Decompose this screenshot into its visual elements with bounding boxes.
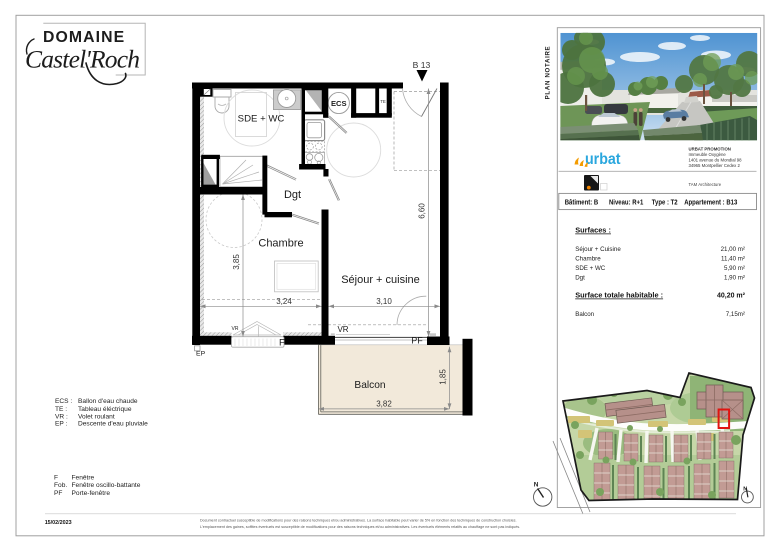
svg-text:40,20 m²: 40,20 m² [717,293,746,300]
svg-text:PF: PF [411,335,423,345]
svg-text:21,00 m²: 21,00 m² [721,246,745,253]
svg-text:Ballon d'eau chaude: Ballon d'eau chaude [78,398,138,405]
svg-text:15/02/2023: 15/02/2023 [45,520,72,526]
svg-text:Porte-fenêtre: Porte-fenêtre [72,490,111,497]
svg-text:VR :: VR : [55,414,68,421]
svg-text:SDE + WC: SDE + WC [575,265,606,272]
svg-text:urbat: urbat [585,150,621,168]
svg-text:N: N [534,482,539,489]
svg-text:Document contractuel susceptib: Document contractuel susceptible de modi… [200,519,517,523]
svg-text:Chambre: Chambre [575,256,601,263]
svg-text:N: N [743,487,747,493]
svg-text:VR: VR [232,326,239,332]
svg-text:B 13: B 13 [413,60,431,70]
svg-text:Bâtiment: B: Bâtiment: B [565,199,599,207]
svg-text:Surfaces :: Surfaces : [575,226,611,235]
svg-text:ECS: ECS [331,99,347,108]
svg-text:TE: TE [380,99,386,104]
svg-text:Fenêtre: Fenêtre [72,475,95,482]
svg-text:Fenêtre oscillo-battante: Fenêtre oscillo-battante [72,482,141,489]
svg-text:Séjour + cuisine: Séjour + cuisine [341,274,420,286]
svg-text:TE :: TE : [55,406,67,413]
svg-text:PLAN NOTAIRE: PLAN NOTAIRE [545,46,552,100]
svg-text:Tableau éléctrique: Tableau éléctrique [78,406,132,413]
svg-text:3,85: 3,85 [232,254,241,270]
svg-text:VR: VR [337,325,348,334]
svg-text:SDE + WC: SDE + WC [238,113,285,124]
svg-text:PF: PF [54,490,62,497]
svg-text:L'emplacement des gaines, soff: L'emplacement des gaines, soffites évent… [200,525,520,529]
svg-text:F: F [54,475,58,482]
svg-text:EP :: EP : [55,421,68,428]
svg-text:3,10: 3,10 [376,297,392,306]
svg-text:DOMAINE: DOMAINE [43,29,125,46]
svg-text:3,24: 3,24 [276,297,292,306]
svg-text:URBAT PROMOTION: URBAT PROMOTION [689,147,731,152]
svg-text:Balcon: Balcon [354,380,385,391]
svg-text:F: F [279,337,285,348]
svg-text:ECS :: ECS : [55,398,72,405]
svg-text:Séjour + Cuisine: Séjour + Cuisine [575,246,621,253]
svg-text:Fob.: Fob. [54,482,67,489]
svg-text:6,60: 6,60 [418,203,427,219]
svg-text:Balcon: Balcon [575,311,594,318]
svg-text:11,40 m²: 11,40 m² [721,256,745,263]
svg-text:Castel'Roch: Castel'Roch [25,45,139,74]
svg-text:5,90 m²: 5,90 m² [724,265,745,272]
svg-text:TAM Architecture: TAM Architecture [689,182,722,187]
svg-text:Surface totale habitable :: Surface totale habitable : [575,291,663,300]
svg-text:Dgt: Dgt [575,274,585,281]
svg-text:Appartement : B13: Appartement : B13 [684,199,737,207]
svg-text:Volet roulant: Volet roulant [78,414,115,421]
svg-text:1,90 m²: 1,90 m² [724,274,745,281]
svg-text:1401 avenue du Mondial 98: 1401 avenue du Mondial 98 [689,158,743,163]
svg-text:34965 Montpellier Cedex 2: 34965 Montpellier Cedex 2 [689,163,741,168]
svg-text:Type : T2: Type : T2 [652,199,678,207]
svg-text:Dgt: Dgt [284,189,301,201]
svg-text:Immeuble Oxygène: Immeuble Oxygène [689,152,727,157]
svg-text:3,82: 3,82 [376,399,392,408]
svg-text:1,85: 1,85 [439,369,448,385]
svg-text:Descente d'eau pluviale: Descente d'eau pluviale [78,421,148,428]
svg-text:Niveau: R+1: Niveau: R+1 [609,199,644,207]
svg-text:EP: EP [196,351,206,358]
svg-text:Chambre: Chambre [258,237,303,249]
svg-text:7,15m²: 7,15m² [726,311,745,318]
